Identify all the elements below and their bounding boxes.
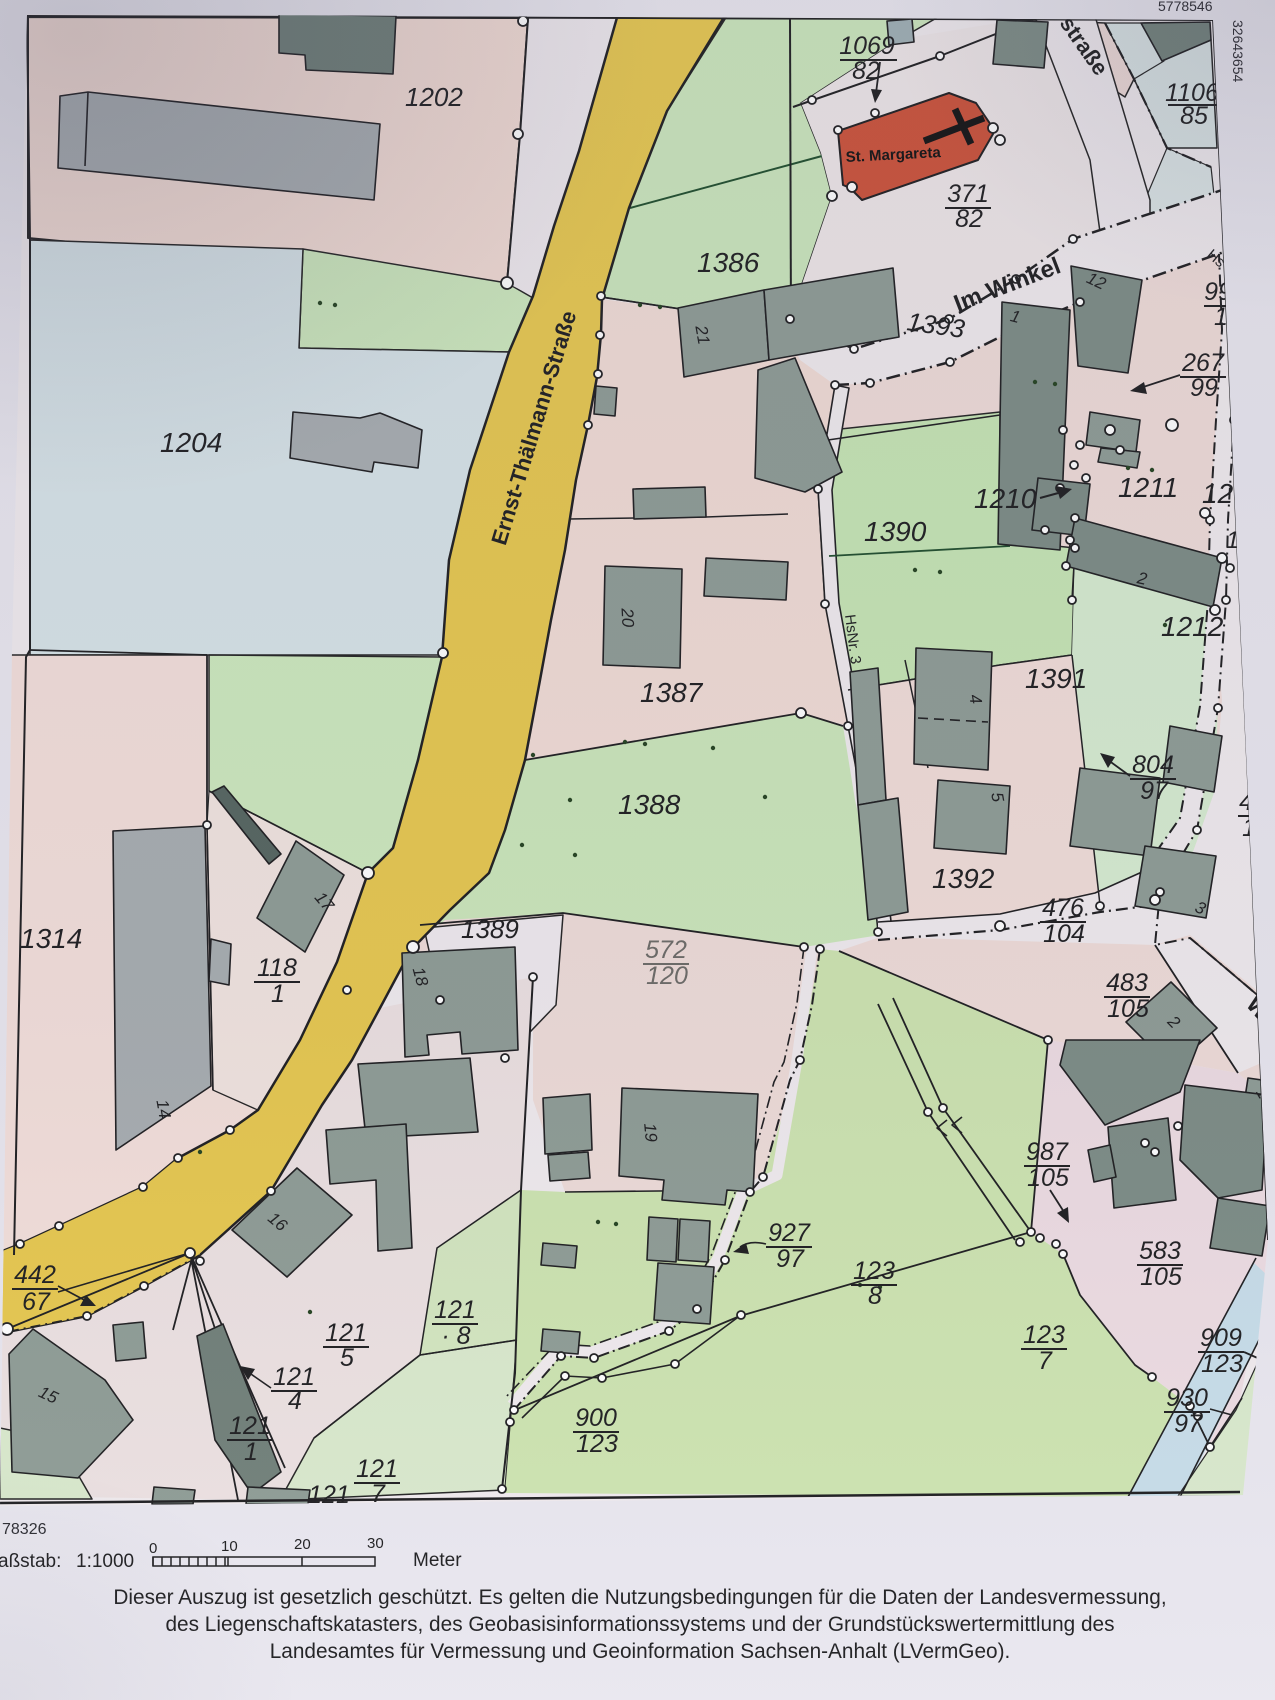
- svg-text:10: 10: [1242, 814, 1270, 842]
- svg-text:67: 67: [22, 1288, 51, 1316]
- svg-text:121: 121: [325, 1319, 367, 1347]
- svg-text:900: 900: [575, 1404, 617, 1432]
- svg-text:des Liegenschaftskatasters, de: des Liegenschaftskatasters, des Geobasis…: [165, 1613, 1114, 1636]
- svg-text:121: 121: [229, 1412, 271, 1440]
- svg-text:930: 930: [1166, 1384, 1208, 1412]
- svg-text:105: 105: [1027, 1164, 1069, 1192]
- svg-text:121: 121: [356, 1455, 398, 1483]
- svg-text:1390: 1390: [864, 516, 927, 547]
- svg-text:97: 97: [1174, 1410, 1203, 1438]
- svg-text:47: 47: [1239, 788, 1268, 816]
- svg-text:1388: 1388: [618, 789, 681, 820]
- svg-text:aßstab:: aßstab:: [0, 1551, 61, 1572]
- svg-text:0: 0: [149, 1540, 157, 1557]
- svg-text:104: 104: [1043, 920, 1085, 948]
- svg-text:99: 99: [1190, 374, 1218, 402]
- svg-text:5: 5: [340, 1344, 354, 1372]
- svg-text:1069: 1069: [839, 32, 895, 60]
- svg-text:483: 483: [1106, 969, 1148, 997]
- svg-text:19: 19: [640, 1122, 661, 1143]
- svg-text:1:1000: 1:1000: [76, 1551, 134, 1572]
- svg-text:20: 20: [294, 1536, 311, 1553]
- svg-text:4: 4: [288, 1387, 302, 1415]
- svg-text:Landesamtes für Vermessung und: Landesamtes für Vermessung und Geoinform…: [270, 1640, 1011, 1663]
- svg-text:120: 120: [1202, 478, 1249, 509]
- svg-text:97: 97: [776, 1245, 805, 1273]
- svg-text:1202: 1202: [405, 82, 463, 112]
- svg-text:1: 1: [244, 1438, 258, 1466]
- svg-text:123: 123: [576, 1430, 618, 1458]
- svg-text:1386: 1386: [697, 247, 760, 278]
- svg-text:21: 21: [691, 323, 713, 346]
- svg-text:20: 20: [617, 607, 637, 628]
- svg-text:82: 82: [955, 205, 983, 233]
- svg-text:· 8: · 8: [441, 1322, 470, 1350]
- svg-text:Dieser Auszug ist gesetzlich g: Dieser Auszug ist gesetzlich geschützt. …: [113, 1586, 1166, 1609]
- svg-text:105: 105: [1140, 1263, 1182, 1291]
- svg-text:118: 118: [257, 954, 297, 982]
- svg-text:5778546: 5778546: [1158, 0, 1213, 14]
- svg-text:12: 12: [1226, 527, 1253, 554]
- svg-text:987: 987: [1026, 1138, 1069, 1166]
- svg-text:1204: 1204: [160, 427, 222, 458]
- svg-text:Meter: Meter: [413, 1550, 462, 1571]
- svg-text:105: 105: [1107, 995, 1149, 1023]
- svg-text:371: 371: [947, 180, 989, 208]
- svg-text:572: 572: [645, 936, 687, 964]
- svg-text:1314: 1314: [20, 923, 82, 954]
- svg-text:78326: 78326: [2, 1521, 47, 1538]
- svg-text:14: 14: [152, 1098, 174, 1120]
- svg-text:1389: 1389: [461, 914, 519, 944]
- svg-text:1387: 1387: [640, 677, 704, 708]
- svg-text:1212: 1212: [1161, 611, 1224, 642]
- svg-text:120: 120: [646, 962, 688, 990]
- svg-text:123: 123: [1023, 1321, 1065, 1349]
- svg-text:1392: 1392: [932, 863, 995, 894]
- svg-text:8: 8: [868, 1282, 882, 1310]
- svg-text:1391: 1391: [1025, 663, 1087, 694]
- svg-text:909: 909: [1200, 1324, 1242, 1352]
- svg-text:32643654: 32643654: [1230, 20, 1246, 83]
- svg-text:97: 97: [1140, 777, 1169, 805]
- svg-text:583: 583: [1139, 1237, 1181, 1265]
- svg-text:267: 267: [1181, 349, 1225, 377]
- svg-text:927: 927: [768, 1219, 811, 1247]
- svg-text:99: 99: [1204, 278, 1232, 306]
- svg-text:1211: 1211: [1118, 472, 1178, 503]
- svg-text:804: 804: [1132, 751, 1174, 779]
- svg-text:82: 82: [852, 57, 880, 85]
- svg-text:476: 476: [1042, 894, 1084, 922]
- svg-text:30: 30: [367, 1535, 384, 1552]
- svg-text:121: 121: [434, 1296, 476, 1324]
- svg-text:121: 121: [308, 1481, 350, 1509]
- svg-text:7: 7: [371, 1480, 386, 1508]
- svg-text:85: 85: [1180, 102, 1208, 130]
- svg-text:1: 1: [271, 980, 285, 1008]
- svg-text:442: 442: [14, 1261, 56, 1289]
- svg-text:7: 7: [1038, 1347, 1053, 1375]
- svg-text:1210: 1210: [974, 483, 1037, 514]
- svg-text:123: 123: [1201, 1350, 1243, 1378]
- svg-text:10: 10: [221, 1538, 238, 1555]
- svg-text:123: 123: [853, 1257, 895, 1285]
